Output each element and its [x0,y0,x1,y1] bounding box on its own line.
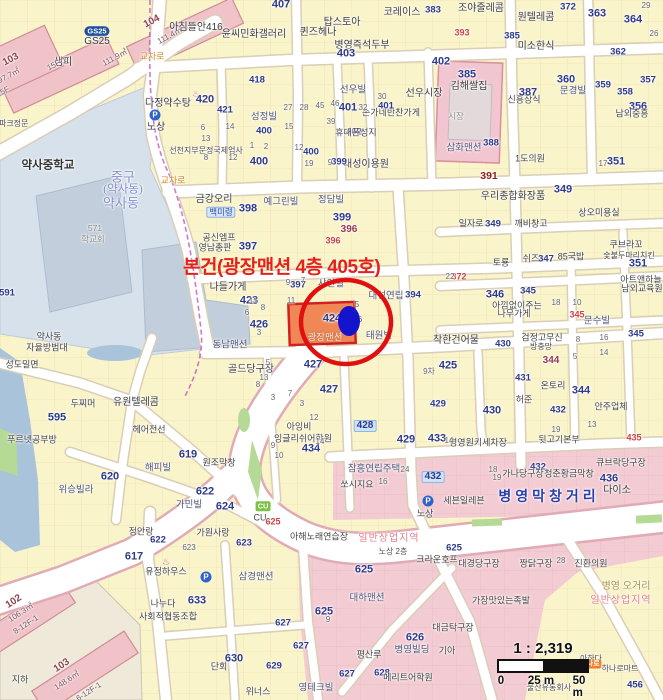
map-label: 358 [617,87,633,97]
map-label: 400 [250,157,268,168]
map-label: 401 [378,101,394,111]
map-label: 헤어전선 [132,426,165,435]
map-label: 14 [600,349,609,357]
map-label: 385 [458,70,476,81]
map-label: 407 [272,0,290,11]
map-label: 가나당구장 [502,470,543,479]
map-label: 16 [379,478,388,486]
map-label: 9 [286,279,290,287]
map-label: 유원텔레콤 [113,398,159,408]
map-label: 일자로 [459,220,484,229]
map-label: 345 [569,311,584,320]
map-label: 병영원키세차장 [449,439,507,448]
cu-badge: CU [256,501,271,511]
scale-tick: 50 m [573,675,586,699]
map-label: 625 [265,518,280,527]
map-label: 428 [354,420,377,432]
map-label: 지하 [12,676,29,685]
map-label: 대경당구장 [458,560,499,569]
map-label: 성정빌 [251,112,277,122]
map-label: 620 [101,472,119,483]
map-label: 398 [239,204,257,215]
map-label: 5 [355,301,359,309]
map-label: 약사동 [37,333,62,342]
map-label: 12 [295,144,304,152]
map-label: 자율방범대 [26,344,67,353]
map-label: 금강오리 [196,195,233,205]
map-label: 430 [495,339,511,349]
map-label: 362 [610,47,626,57]
map-label: 425 [439,361,457,372]
map-label: 400 [303,147,319,157]
map-label: 627 [275,618,291,628]
map-label: 10 [573,299,582,307]
map-label: 396 [341,225,358,235]
map-label: 432 [422,471,445,483]
map-label: 27 [284,104,293,112]
map-label: 626 [406,633,424,644]
map-label: 쏘시지요 [340,481,373,490]
map-label: 남외교육원 [621,285,662,294]
map-label: 중구 [111,171,135,184]
map-label: 노상 [417,510,434,519]
map-label: 421 [217,105,233,115]
map-label: 온토리 [541,382,566,391]
map-label: 9 [326,616,330,624]
map-label: 노상 2층 [379,548,408,556]
map-label: 대성이용원 [343,160,389,170]
map-label: 617 [125,552,143,563]
map-label: 11 [287,297,295,305]
scale-ticks: 0 25 m 50 m [497,675,589,689]
map-label: 344 [572,386,590,397]
map-label: 11 [249,298,257,306]
map-label: 쿠브라꼬 [609,241,642,250]
subject-annotation: 본건(광장맨션 4층 405호) [183,252,380,279]
map-label: 391 [480,171,498,182]
map-label: 큐브락당구장 [596,459,646,468]
map-label: 14 [226,123,235,131]
scale-bar-black [543,661,587,671]
map-label: 345 [520,286,536,296]
map-label: 9 [271,442,275,450]
map-label: 429 [430,399,446,409]
parking-icon: P [150,110,161,121]
map-labels-layer: 중구(약사동)약사동약사중학교571학교회이파크정문P노상교차로교차로약사동자율… [0,0,663,700]
map-label: 28 [557,557,566,565]
map-label: 364 [624,15,642,26]
map-label: 참흥연립주택 [348,464,400,474]
map-label: 627 [293,641,309,651]
map-label: 385 [504,31,520,41]
map-label: 625 [355,565,373,576]
map-scale: 1 : 2,319 0 25 m 50 m [497,640,589,689]
map-label: 공신엠프 [202,234,235,243]
map-label: 교차로 [161,177,186,186]
subject-building-label: 광장맨션 [308,333,343,343]
map-label: 13 [588,421,597,429]
map-label: 19 [493,474,502,482]
map-label: 399 [333,213,351,224]
map-label: 625 [315,607,333,618]
map-label: 430 [483,406,501,417]
map-label: 위너스 [246,688,271,697]
map-label: 351 [607,157,625,168]
map-label: 346 [486,290,504,301]
map-label: 3 [271,394,275,402]
map-label: 46 [331,100,340,108]
map-label: 571 [88,224,102,233]
map-label: 19 [552,426,561,434]
map-label: 14 [445,437,454,445]
spa-icon: ♨ [162,558,170,567]
map-label: 선우시장 [406,89,443,99]
map-label: 대금탁구장 [432,624,473,633]
map-label: 360 [557,75,575,86]
map-label: 399 [331,157,347,167]
map-label: 학교회 [81,235,104,244]
map-label: 일반상업지역 [358,534,419,544]
map-label: 591 [0,288,15,298]
map-label: 정담빌 [318,195,344,205]
gs25-badge: GS25 [84,26,109,36]
map-label: 627 [339,669,355,679]
map-label: 우리종합화장품 [481,192,545,202]
map-label: 크라운호프 [416,556,457,565]
map-label: 7 [288,390,292,398]
map-label: 349 [554,185,572,196]
map-label: 420 [196,95,214,106]
map-label: 위승빌라 [59,485,94,495]
parking-icon: P [423,496,434,507]
map-label: 청춘황금막창 [544,470,594,479]
map-label: 나누다 [151,600,176,609]
map-label: 병영막창거리 [498,489,599,503]
map-label: 9차 [423,368,435,376]
map-label: 다정약수탕 [145,99,191,109]
map-label: 코레이스 [384,8,421,18]
map-label: 9 [328,159,332,167]
map-label: 400 [256,126,272,136]
map-label: 619 [179,450,197,461]
map-label: 10 [275,452,284,460]
map-label: 349 [485,219,501,229]
map-label: 595 [48,413,66,424]
map-label: 6 [245,309,249,317]
map-label: 대성연립 [369,291,404,301]
map-label: 안주업체 [594,403,627,412]
scale-ratio: 1 : 2,319 [497,640,589,657]
map-label: 32 [359,104,368,112]
scale-bar-white [499,661,543,671]
map-label: 623 [236,538,252,548]
parking-icon: P [201,572,212,583]
map-label: 조야줄레콤 [458,4,504,14]
map-label: 396 [325,237,340,246]
map-label: 노상 [147,123,165,133]
map-label: 387 [519,88,537,99]
map-label: 97.7㎡ [0,67,21,85]
map-label: 시장 [448,112,464,121]
map-label: 나무가게 [497,310,530,319]
map-label: 예그린빌 [264,197,299,207]
map-label: 436 [600,474,618,485]
map-label: 28 [300,104,309,112]
map-label: 교차로 [140,53,165,62]
map-label: 394 [405,290,421,300]
map-label: 2 [264,143,268,151]
map-label: 진환의원 [574,560,607,569]
map-label: 8 [256,381,260,389]
map-label: 633 [188,596,206,607]
map-label: 선우빌 [340,85,366,95]
map-label: 5 [573,353,577,361]
map-label: 휴대폰성지 [335,129,376,138]
map-label: 문수빌 [584,316,610,326]
map-label: 14 [316,438,325,446]
map-label: 평산루 [357,651,382,660]
map-label: 427 [320,385,338,396]
map-label: 383 [425,5,441,15]
map-label: 357 [640,75,656,85]
map-label: 1도의원 [515,155,545,164]
map-label: 병영 오거리 [602,582,651,592]
map-label: 일반상업지역 [590,596,651,606]
map-label: 3 [300,400,304,408]
map-label: 가민빌 [176,500,202,510]
map-label: 푸르넷공부방 [7,436,57,445]
map-label: 착한건어물 [433,336,479,346]
map-label: 456 [627,680,643,690]
map-label: 대하맨션 [350,593,385,603]
map-label: 16 [600,334,609,342]
map-label: 359 [595,80,611,90]
map-label: 1 [250,142,254,150]
map-label: 45 [316,102,325,110]
map-label: 12 [229,154,238,162]
map-label: 15F-1 [46,56,68,73]
map-label: 8 [576,336,580,344]
map-label: 윤씨민화갤러리 [222,30,286,40]
map-label: 뒷고기본부 [538,436,579,445]
map-label: 아침뜰안416 [169,23,223,33]
map-label: 짱닭구장 [519,560,552,569]
map-label: 388 [483,138,499,148]
map-label: 5 [266,359,270,367]
map-label: 방충망 [530,343,552,351]
map-label: 두찌머 [71,400,96,409]
map-label: 345 [628,329,644,339]
scale-bar [497,659,589,673]
map-label: GS25 [84,37,110,47]
map-label: 104 [142,14,161,31]
map-label: 하나로마트 [602,665,639,673]
map-label: 미소한식 [518,42,555,52]
map-label: 상오미용실 [578,209,619,218]
map-label: 유정하우스 [145,568,186,577]
map-label: 431 [515,373,531,383]
map-label: 백미령 [206,207,235,218]
map-label: 병영빌딩 [395,645,430,655]
map-label: 39 [327,118,336,126]
map-label: 85국밥 [558,253,585,262]
map-label: 태원빌 [366,331,392,341]
map-label: 427 [304,360,322,371]
map-label: 629 [266,661,282,671]
map-label: 111.9㎡ [101,48,128,68]
map-label: 탑스토아 [324,18,361,28]
map-label: 418 [249,75,265,85]
map-label: 625 [446,543,462,553]
map-label: 3 [257,329,261,337]
map-label: 퀸즈헤나 [300,28,337,38]
map-label: 624 [216,502,234,513]
map-label: 가장맛있는족발 [472,597,530,606]
map-label: 영테크빌 [299,683,334,693]
map-label: 401 [339,103,357,114]
map-label: 433 [428,434,446,445]
map-label: 402 [432,57,450,68]
map-label: 12 [310,414,319,422]
map-label: 6 [201,124,205,132]
map-label: 아잉비 [287,423,312,432]
map-label: 다이소 [603,486,631,496]
map-label: 가원사랑 [196,529,229,538]
map-label: 세븐일레븐 [443,497,484,506]
map-label: 397 [239,242,257,253]
map-label: 나들가게 [210,283,247,293]
map-label: 372 [560,2,576,12]
map-label: 5F [0,85,11,96]
scale-tick: 25 m [528,675,554,687]
map-label: 원텔레콤 [518,13,555,23]
map-label: 성도밀면 [5,361,38,370]
map-label: 해피빌 [145,463,171,473]
map-label: 29 [642,2,651,10]
scale-tick: 0 [498,675,504,687]
map-label: 김해쌀집 [451,82,488,92]
map-label: 435 [626,434,641,443]
map-label: 삼경맨션 [239,572,274,582]
map-label: 393 [454,29,469,38]
map-label: 6-12F-1 [75,681,103,700]
map-label: 기아 [439,647,456,656]
map-label: 103 [52,657,71,674]
map-label: 남외중흥 [615,110,648,119]
map-label: 24 [401,466,410,474]
map-label: 약사중학교 [22,160,75,172]
map-label: 허준 [516,396,533,405]
map-label: 403 [337,49,355,60]
map-label: 13 [202,135,211,143]
map-label: 22 [446,273,455,281]
map-label: 17 [599,160,608,168]
map-label: 토룡 [493,259,510,268]
map-label: 8 [261,304,265,312]
map-label: 쉬즈 [523,255,540,264]
map-label: 344 [543,356,560,366]
map-label: 26 [650,30,659,38]
map-label: 15 [285,123,294,131]
map-label: 8 [204,154,208,162]
map-label: 사회적협동조합 [139,613,197,622]
map-label: 메리트어학원 [383,674,433,683]
map-label: 13 [260,374,269,382]
map-label: 18 [552,299,561,307]
map-label: 623 [182,544,195,552]
map-label: 622 [196,487,214,498]
map-label: 삼화맨션 [447,143,482,153]
map-label: (약사동) [103,184,142,196]
map-label: 원조막창 [202,459,235,468]
map-label: 622 [150,535,166,545]
map-label: 351 [629,259,647,270]
map-label: 이파크정문 [0,120,28,128]
map-label: 문경빌 [560,86,586,96]
map-label: 429 [397,435,415,446]
map-label: 432 [550,405,566,415]
map-label: 347 [538,254,554,264]
map-label: 363 [588,9,606,20]
map-label: 아해노래연습장 [290,533,348,542]
map-label: 샤인빌 [318,279,344,289]
map-label: 30 [378,93,387,101]
map-label: 19 [305,160,314,168]
map-canvas[interactable]: 중구(약사동)약사동약사중학교571학교회이파크정문P노상교차로교차로약사동자율… [0,0,663,700]
map-label: 깨비창고 [514,220,547,229]
subject-parcel-number: 424 [323,314,341,325]
map-label: 약사동 [103,197,139,210]
map-label: 6 [358,316,362,324]
map-label: 동남맨션 [213,340,248,350]
map-label: 단회 [211,663,228,672]
